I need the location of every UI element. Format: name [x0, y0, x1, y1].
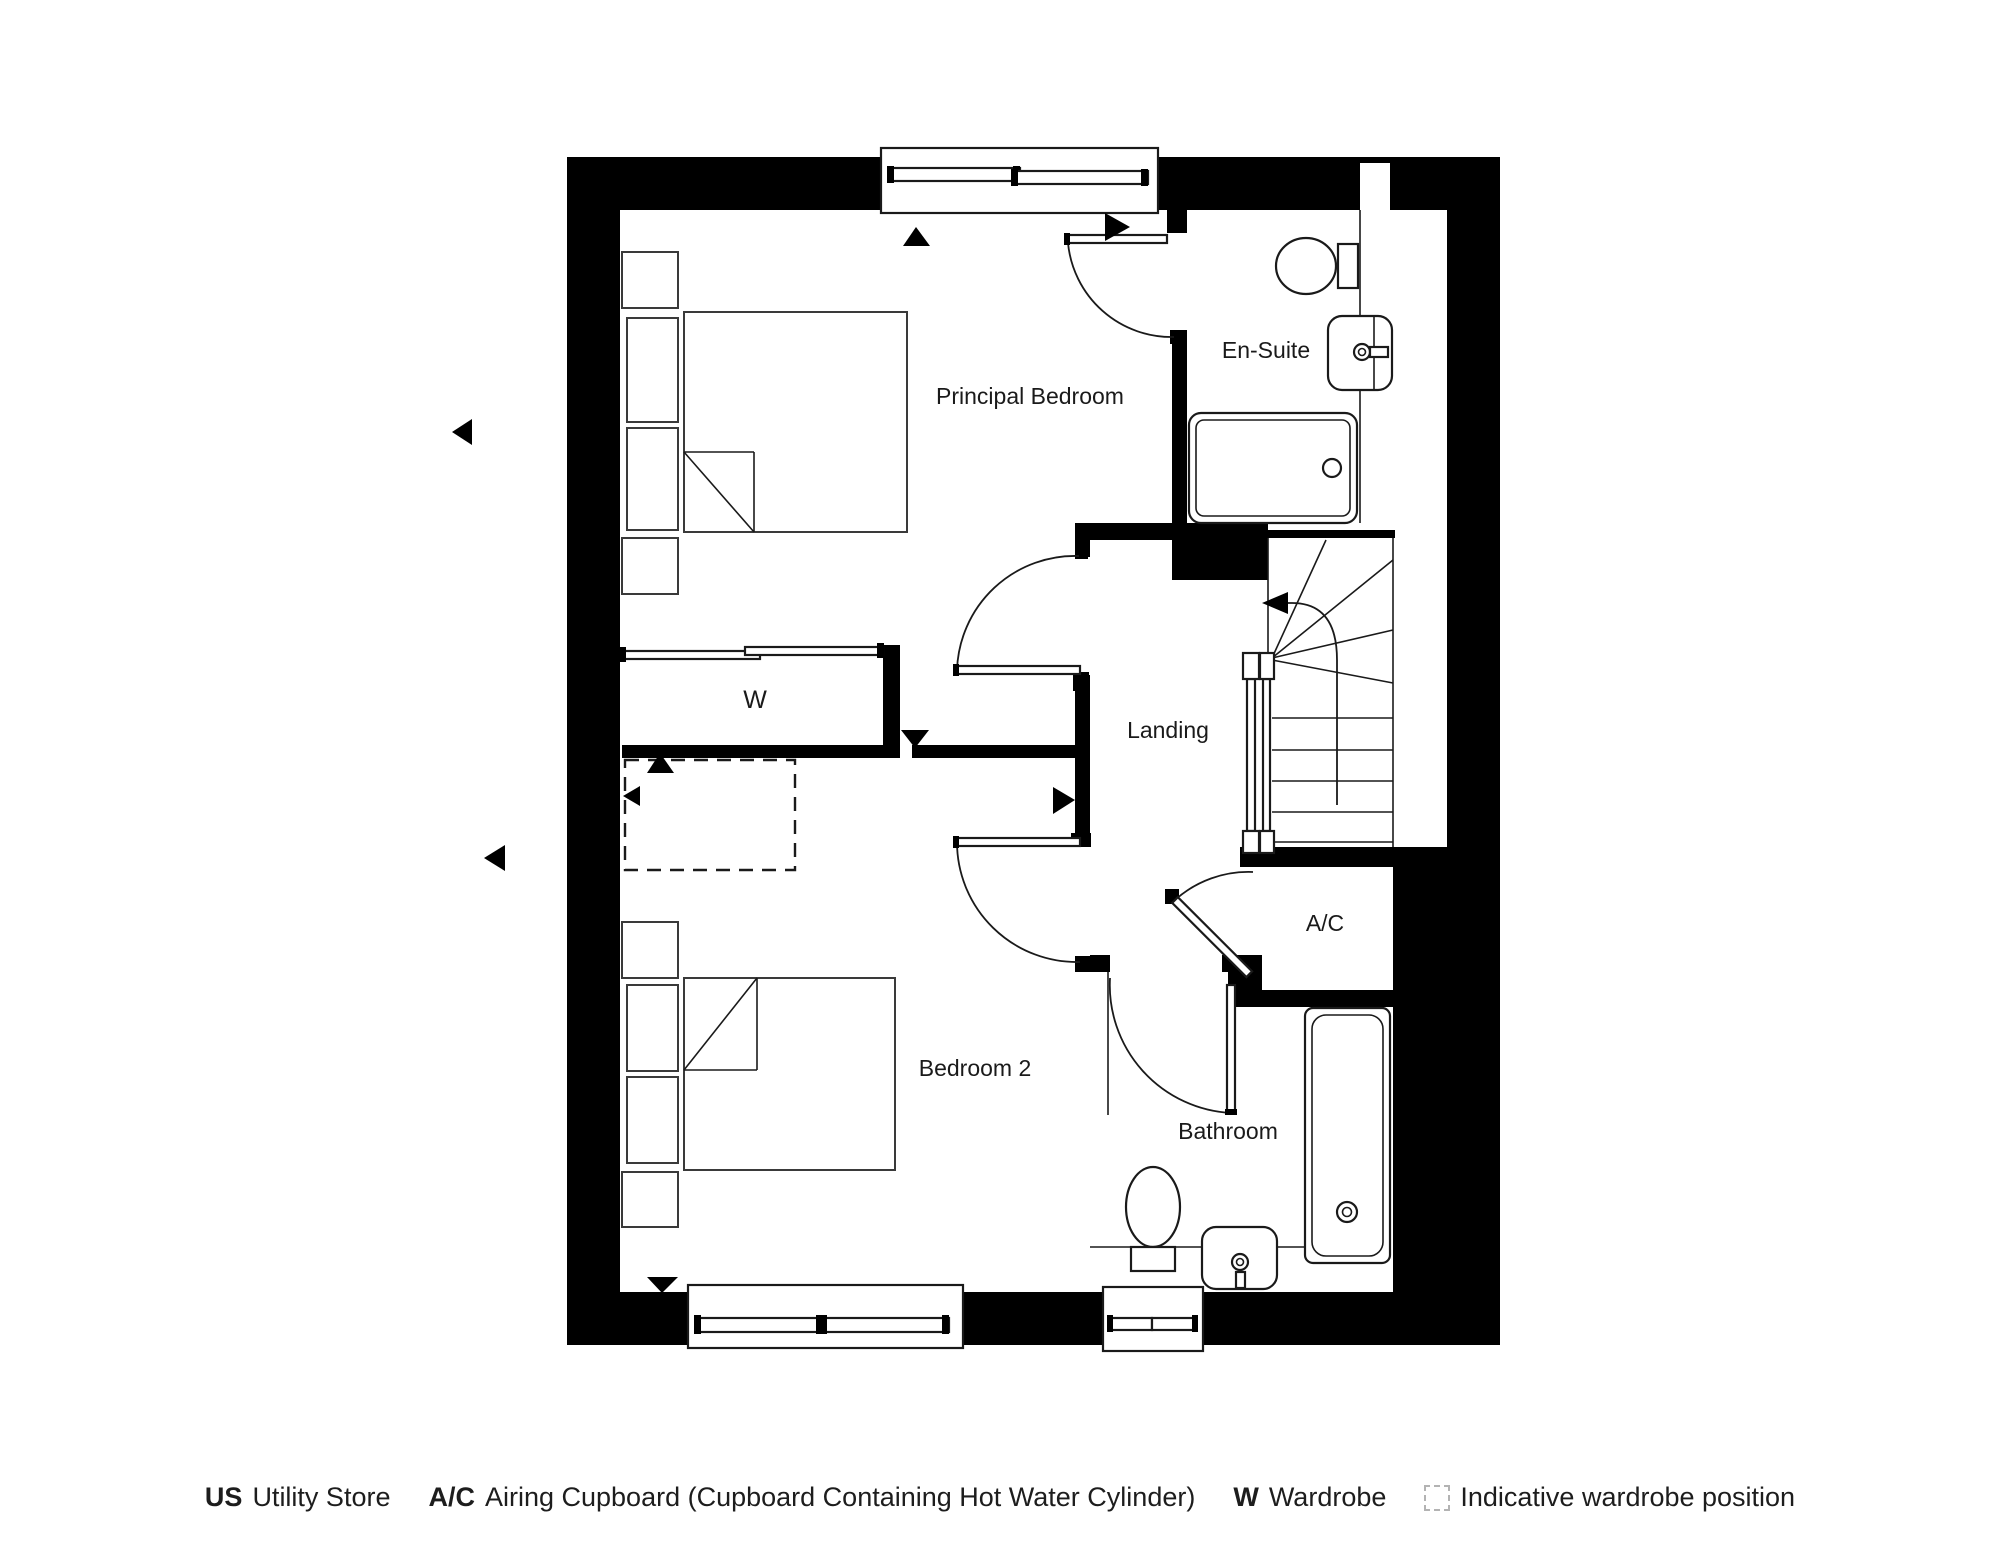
ensuite-fixtures — [1189, 210, 1392, 523]
marker-bedroom2-wall — [1053, 787, 1075, 814]
wall-bedroom2-bath-stub — [1075, 956, 1090, 972]
window-bedroom2 — [688, 1285, 963, 1348]
pillow — [627, 1077, 678, 1163]
wall-bottom-right — [1203, 1292, 1500, 1345]
label-principal-bedroom: Principal Bedroom — [936, 383, 1124, 409]
bath-icon — [1305, 1008, 1390, 1263]
marker-top-window — [903, 227, 930, 246]
door-principal-bedroom — [953, 556, 1080, 676]
shower-icon — [1189, 413, 1357, 523]
wall-right-lower — [1393, 867, 1447, 1345]
bedside-table — [622, 1172, 678, 1227]
label-en-suite: En-Suite — [1222, 337, 1310, 363]
label-landing: Landing — [1127, 717, 1209, 743]
toilet-icon — [1276, 238, 1358, 294]
wall-bedroom2-top — [912, 745, 1090, 758]
stair-balustrade — [1243, 653, 1274, 853]
wall-left — [567, 157, 620, 1345]
wall-bedroom2-landing — [1075, 675, 1090, 845]
marker-left-upper — [452, 419, 472, 445]
wall-right — [1447, 157, 1500, 1345]
sink-icon — [1328, 316, 1392, 390]
wall-ensuite-left — [1172, 335, 1187, 523]
bedside-table — [622, 538, 678, 594]
legend-key: W — [1233, 1482, 1258, 1513]
stair-direction-arrow — [1262, 592, 1337, 805]
door-bathroom — [1108, 972, 1237, 1115]
marker-bedroom2-window — [647, 1277, 678, 1293]
indicative-wardrobe-position — [625, 760, 795, 870]
marker-left-lower — [484, 845, 505, 871]
legend-label: Wardrobe — [1269, 1482, 1387, 1513]
toilet-icon — [1126, 1167, 1180, 1271]
wall-bottom-left — [567, 1292, 697, 1345]
window-bathroom — [1103, 1287, 1203, 1351]
sink-icon — [1202, 1227, 1277, 1289]
stairs-icon — [1243, 538, 1393, 853]
furniture — [619, 252, 907, 1227]
door-ensuite — [1064, 233, 1174, 337]
bedside-table — [622, 922, 678, 978]
wall-top-left — [567, 157, 885, 210]
wall-wardrobe-stub — [883, 645, 900, 758]
wall-bathroom-top-left — [1090, 955, 1110, 972]
bedside-table — [622, 252, 678, 308]
wall-ensuite-left-stub — [1167, 207, 1187, 233]
legend-key: A/C — [428, 1482, 475, 1513]
legend-item-indicative-wardrobe: Indicative wardrobe position — [1424, 1482, 1795, 1513]
label-bathroom: Bathroom — [1178, 1118, 1278, 1144]
doors — [953, 233, 1253, 1115]
label-bedroom2: Bedroom 2 — [919, 1055, 1032, 1081]
stair-head-bar — [1268, 530, 1395, 538]
pillow — [627, 428, 678, 530]
duct-notch — [1360, 163, 1390, 210]
door-bedroom2 — [953, 836, 1080, 962]
legend-key: US — [205, 1482, 243, 1513]
legend-label: Indicative wardrobe position — [1460, 1482, 1795, 1513]
bed-bedroom2-icon — [622, 922, 895, 1227]
legend-item-airing-cupboard: A/C Airing Cupboard (Cupboard Containing… — [428, 1482, 1195, 1513]
pillow — [627, 985, 678, 1071]
wall-ac-bottom — [1250, 990, 1395, 1007]
legend-item-wardrobe: W Wardrobe — [1233, 1482, 1386, 1513]
legend-item-utility-store: US Utility Store — [205, 1482, 391, 1513]
bathroom-fixtures — [1090, 1008, 1390, 1289]
wall-bottom-middle — [963, 1292, 1103, 1345]
legend-label: Airing Cupboard (Cupboard Containing Hot… — [485, 1482, 1195, 1513]
bed-principal-icon — [622, 252, 907, 594]
pillow — [627, 318, 678, 422]
legend: US Utility Store A/C Airing Cupboard (Cu… — [0, 1482, 2000, 1513]
label-airing-cupboard: A/C — [1306, 910, 1344, 936]
window-principal-bedroom — [881, 148, 1158, 213]
floor-plan: Principal Bedroom En-Suite Landing W A/C… — [0, 0, 2000, 1561]
legend-label: Utility Store — [252, 1482, 390, 1513]
label-wardrobe: W — [743, 686, 767, 714]
wall-landing-top — [1075, 523, 1172, 540]
door-airing-cupboard — [1172, 872, 1253, 977]
wall-ensuite-bottom — [1172, 523, 1268, 580]
wardrobe-sliding-doors — [619, 643, 884, 662]
dashed-box-icon — [1424, 1485, 1450, 1511]
